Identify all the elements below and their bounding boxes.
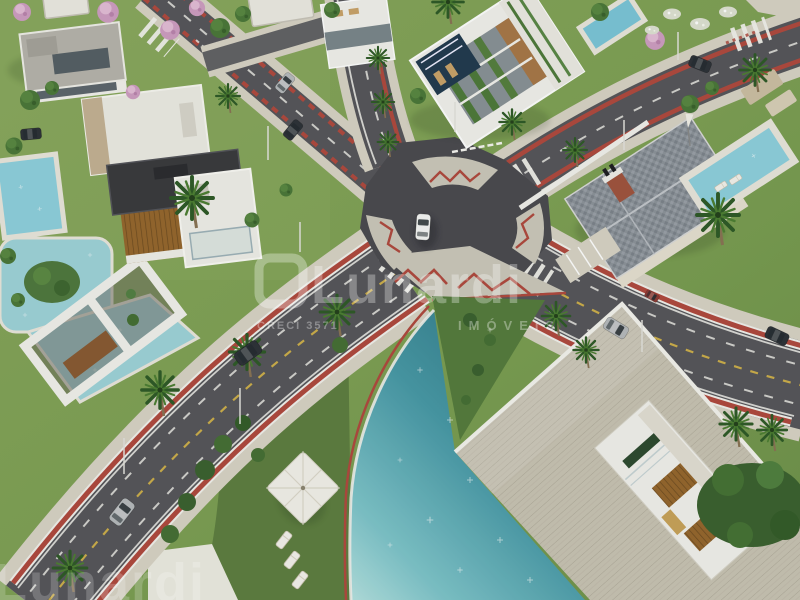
aerial-render: Lunardi CRECI 3571 IMÓVEIS Lunardi	[0, 0, 800, 600]
render-canvas	[0, 0, 800, 600]
vignette	[0, 0, 800, 600]
